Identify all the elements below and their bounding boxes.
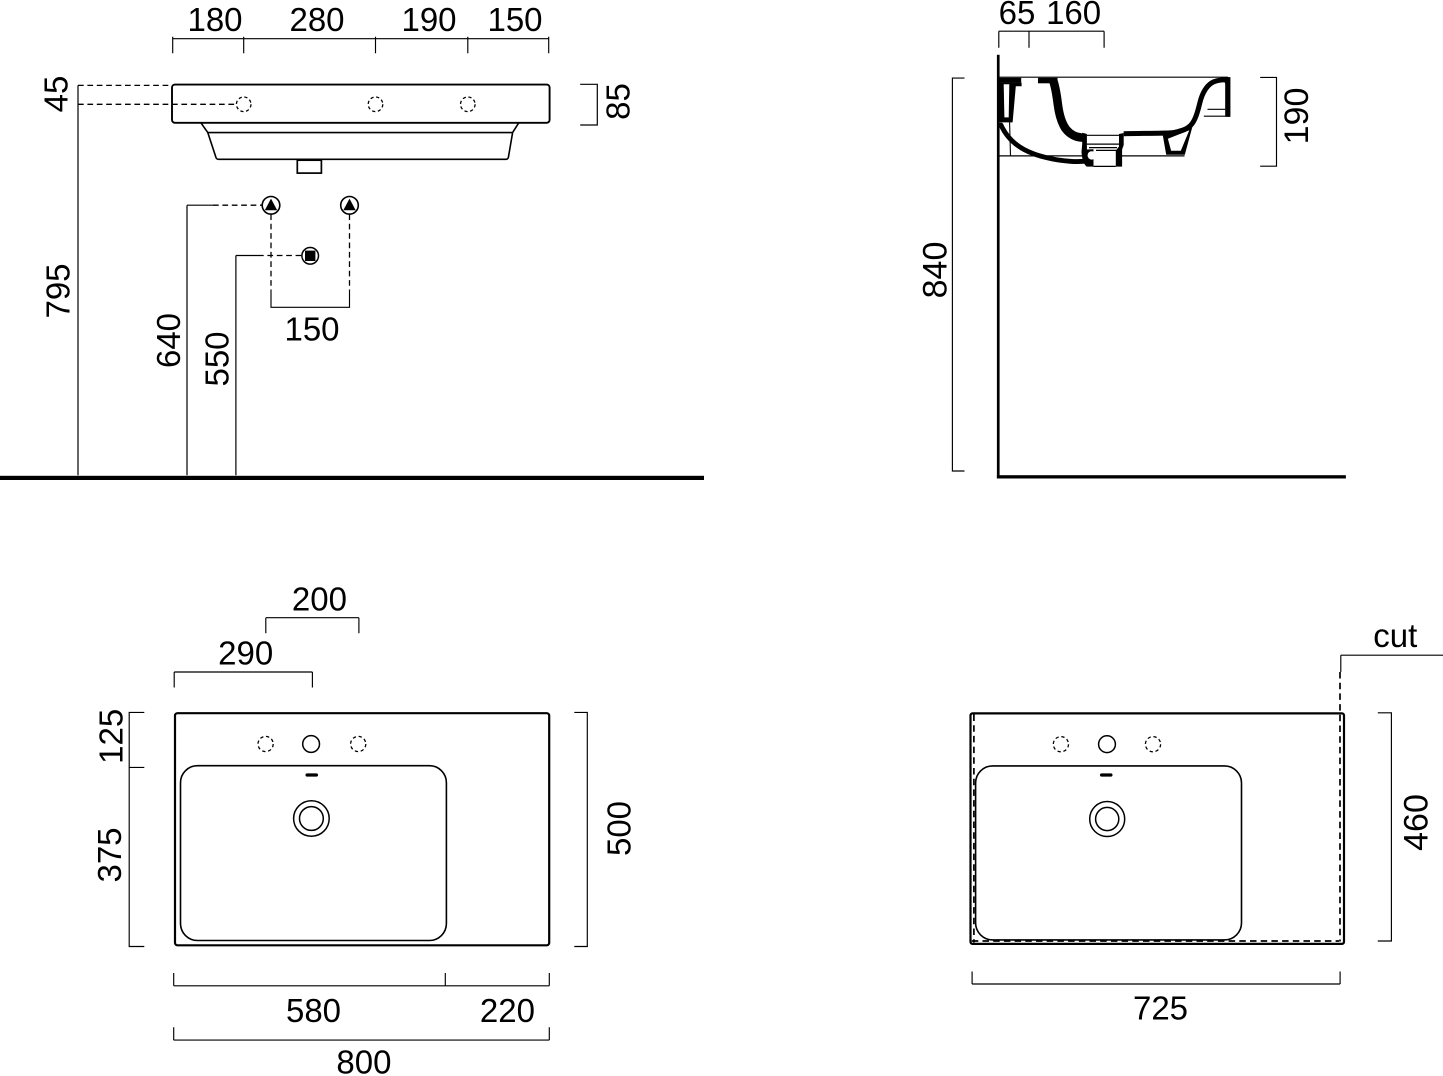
svg-text:500: 500: [601, 801, 638, 856]
svg-text:290: 290: [218, 635, 273, 672]
svg-text:45: 45: [38, 76, 75, 113]
svg-text:375: 375: [91, 827, 128, 882]
svg-text:180: 180: [187, 1, 242, 38]
svg-text:85: 85: [600, 83, 637, 120]
svg-text:220: 220: [480, 992, 535, 1029]
svg-text:150: 150: [487, 1, 542, 38]
svg-text:640: 640: [150, 313, 187, 368]
svg-text:cut: cut: [1373, 617, 1417, 654]
svg-text:190: 190: [401, 1, 456, 38]
svg-text:580: 580: [286, 992, 341, 1029]
svg-text:840: 840: [917, 242, 955, 299]
svg-text:280: 280: [289, 1, 344, 38]
svg-text:795: 795: [40, 263, 77, 318]
svg-text:550: 550: [199, 331, 236, 386]
svg-text:65: 65: [999, 0, 1036, 31]
svg-text:190: 190: [1278, 88, 1316, 145]
svg-text:125: 125: [93, 709, 130, 764]
svg-text:460: 460: [1397, 794, 1435, 851]
svg-text:200: 200: [292, 581, 347, 618]
svg-text:160: 160: [1046, 0, 1101, 31]
svg-text:150: 150: [284, 311, 339, 348]
svg-text:800: 800: [336, 1044, 391, 1076]
svg-text:725: 725: [1133, 990, 1188, 1027]
